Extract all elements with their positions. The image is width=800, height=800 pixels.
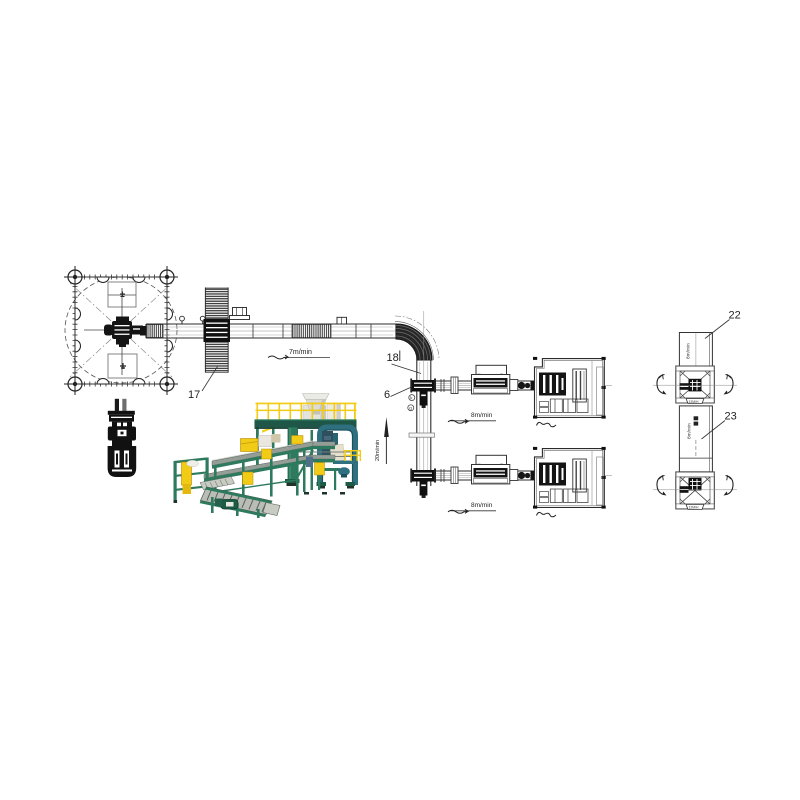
svg-text:8m/min: 8m/min <box>471 412 493 419</box>
svg-text:8m/min: 8m/min <box>687 423 693 439</box>
svg-text:8m/min: 8m/min <box>686 343 692 359</box>
svg-text:23: 23 <box>725 411 737 423</box>
svg-text:20m/min: 20m/min <box>375 440 381 461</box>
svg-text:6: 6 <box>384 389 390 401</box>
svg-text:17: 17 <box>188 389 200 401</box>
svg-text:7m/min: 7m/min <box>289 349 312 356</box>
svg-text:12M/H: 12M/H <box>689 400 700 404</box>
svg-text:22: 22 <box>729 310 741 322</box>
svg-text:12M/H: 12M/H <box>689 506 700 510</box>
svg-text:18: 18 <box>387 352 399 364</box>
